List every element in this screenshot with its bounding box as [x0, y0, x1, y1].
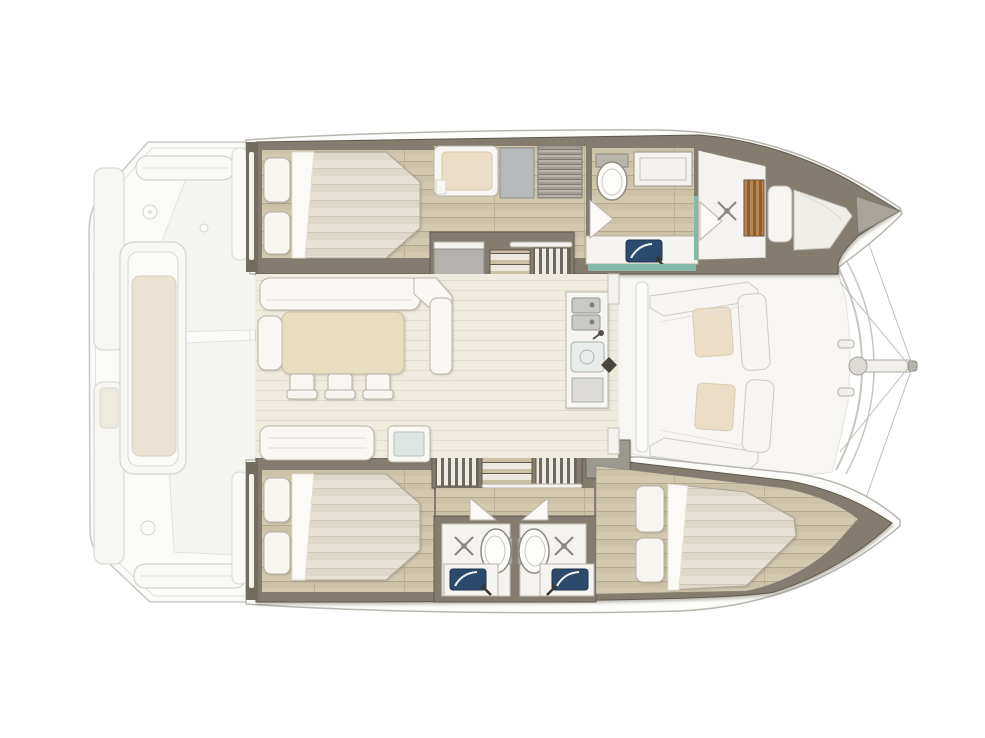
dining-chair [325, 374, 355, 399]
deck-fitting-top-dot [148, 210, 152, 214]
dining-chairs [287, 374, 393, 399]
deck-fitting-bottom [141, 521, 155, 535]
faucet-head [482, 585, 487, 590]
floor-plan-canvas [0, 0, 985, 738]
pillow [264, 478, 290, 522]
bow-berth-cushion [768, 186, 792, 242]
pillow [636, 486, 664, 532]
port-louver-locker [538, 146, 582, 198]
beam-cleat-upper [838, 340, 854, 348]
port-wardrobe [500, 148, 534, 198]
shower-glass-teal-side [694, 196, 698, 260]
catamaran-floor-plan [0, 0, 985, 738]
beam-cleat-lower [838, 388, 854, 396]
deck-fitting-mid [200, 224, 208, 232]
galley-sink-icon [572, 298, 600, 313]
starboard-stern-window [249, 474, 254, 588]
saloon [256, 274, 619, 462]
port-forward-shower [694, 150, 766, 260]
saloon-forward-wall-upper [608, 274, 619, 304]
saloon-sofa-right-arm [430, 298, 452, 374]
port-settee-cushion [442, 152, 492, 190]
aft-deck [89, 142, 256, 602]
shower-glass-teal [588, 264, 696, 271]
saloon-sofa-left-arm [258, 316, 282, 370]
galley-hob [572, 378, 603, 402]
port-aft-cabin [262, 150, 434, 258]
sink-icon [552, 569, 588, 590]
galley [566, 292, 608, 408]
port-settee-notch [436, 180, 446, 194]
bathroom-counter [634, 152, 692, 186]
dining-chair [287, 374, 317, 399]
side-cabinet-top [394, 432, 424, 456]
saloon-forward-wall-lower [608, 428, 619, 454]
bowsprit-tip [908, 361, 917, 371]
port-stairs-locker [434, 242, 484, 249]
stairs-handrail [510, 242, 572, 247]
pillow [264, 532, 290, 574]
stairs-handrail [482, 484, 582, 488]
galley-basin [571, 342, 604, 372]
sink-icon [450, 569, 486, 590]
faucet-head [552, 585, 557, 590]
pillow [636, 538, 664, 582]
corridor-floor [436, 488, 594, 518]
starboard-aft-cabin [262, 470, 434, 592]
pillow [264, 212, 290, 254]
cockpit-backrest-lower [742, 379, 775, 453]
cockpit-cushion-lower [694, 383, 735, 432]
saloon-forward-door [636, 282, 648, 452]
saloon-bottom-sofa [260, 426, 374, 460]
port-stern-window [249, 152, 254, 260]
galley-sink-icon [572, 315, 600, 330]
transom-step-port [232, 148, 248, 260]
galley-sink-drain [590, 320, 595, 325]
forward-cockpit [618, 260, 874, 478]
port-forward-bathroom [586, 148, 698, 271]
slatted-bench-icon [744, 180, 764, 236]
pillow [264, 158, 290, 202]
deck-lounge-cushion [132, 276, 176, 456]
bow-rigging [838, 236, 917, 498]
cockpit-backrest-upper [737, 293, 770, 371]
dining-table [282, 312, 404, 374]
faucet-head [656, 257, 661, 262]
galley-sink-drain [590, 303, 595, 308]
saloon-sofa-back [260, 278, 420, 310]
swim-platform-pad [100, 388, 118, 428]
dining-chair [363, 374, 393, 399]
toilet-icon [597, 162, 627, 200]
bowsprit-ring-fitting [849, 357, 867, 375]
